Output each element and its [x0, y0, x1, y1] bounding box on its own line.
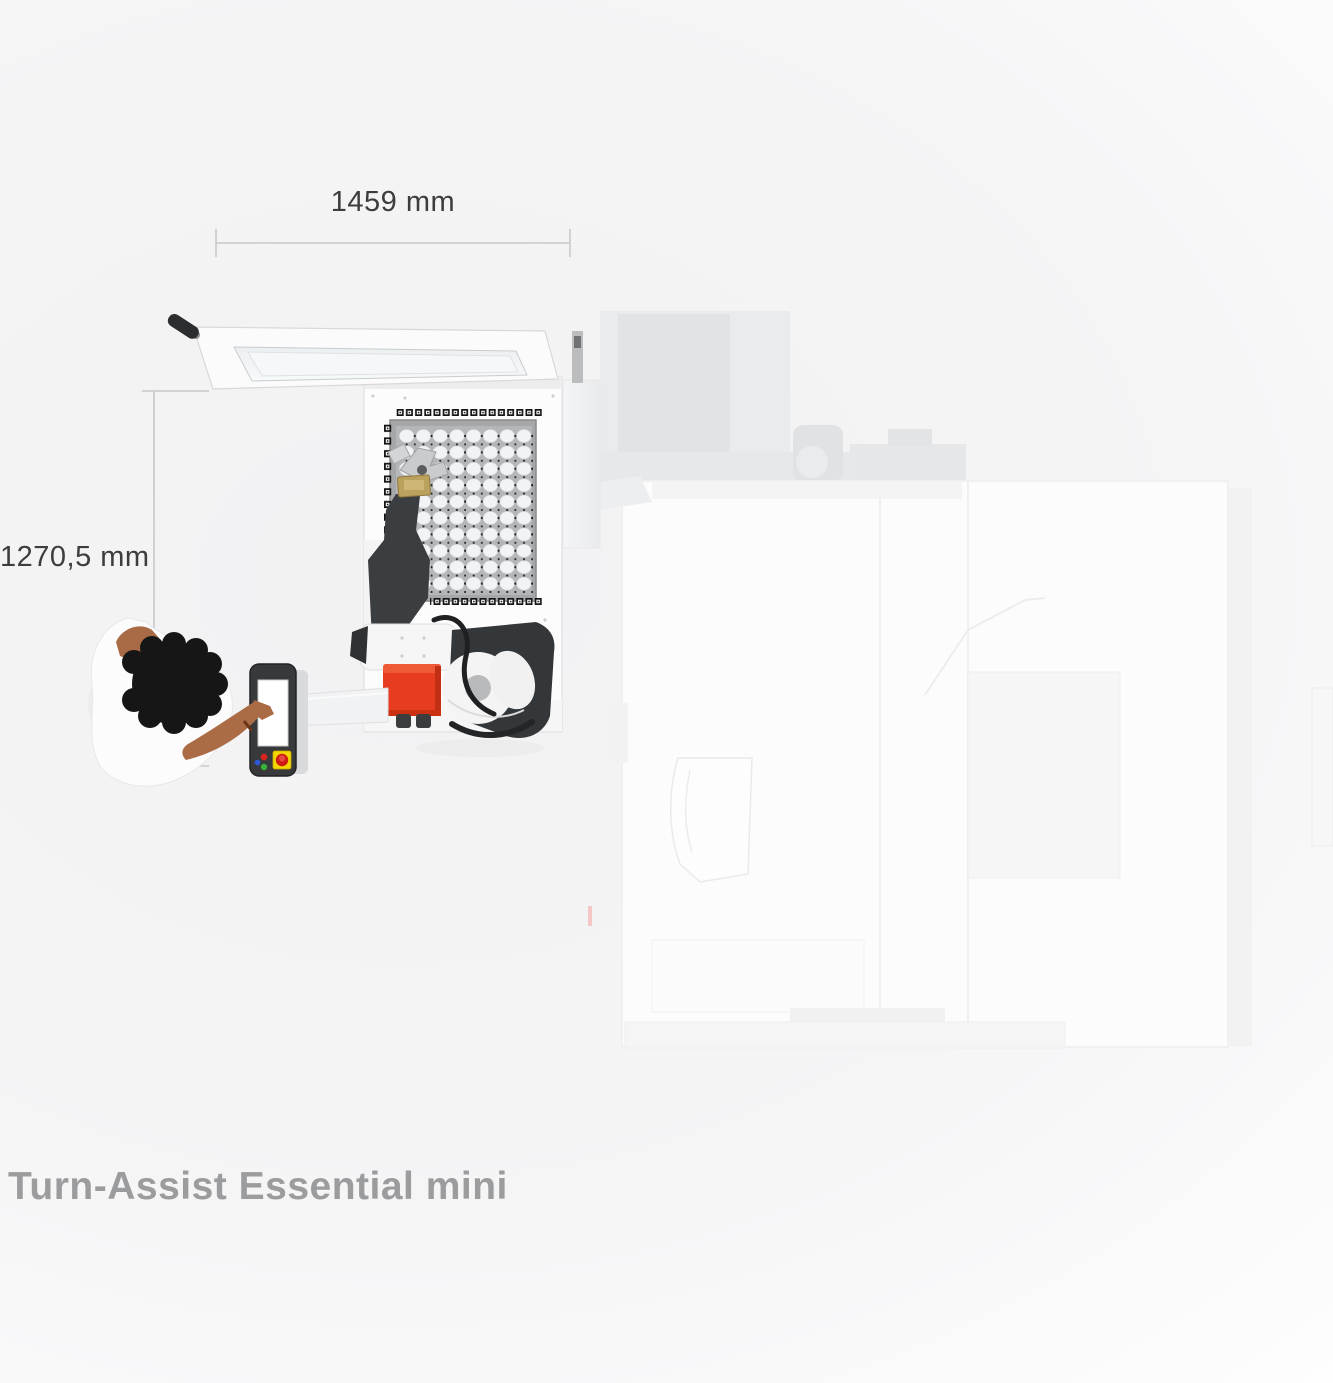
- emergency-stop-button: [273, 751, 291, 769]
- base-connector: [416, 714, 431, 728]
- robot-shoulder: [360, 624, 456, 670]
- width-dimension-line: [216, 229, 570, 257]
- fiducial-markers-top: [396, 408, 542, 417]
- cabinet-side-panel: [563, 380, 600, 548]
- pendant-button-red: [261, 754, 268, 761]
- lid-handle: [166, 312, 202, 341]
- product-caption: Turn-Assist Essential mini: [8, 1165, 508, 1209]
- operator: [88, 618, 274, 786]
- fiducial-markers-bottom: [430, 597, 542, 606]
- open-lid: [166, 312, 583, 389]
- height-dimension-label: 1270,5 mm: [0, 541, 141, 574]
- base-connector: [396, 714, 411, 728]
- product-layout-illustration: 1459 mm 1270,5 mm Turn-Assist Essential …: [0, 0, 1333, 1383]
- pendant-button-green: [261, 764, 267, 770]
- ghost-cnc-machine: [560, 311, 1333, 1048]
- pendant-button-blue: [255, 760, 261, 766]
- width-dimension-label: 1459 mm: [216, 186, 570, 219]
- control-pendant: [250, 664, 308, 776]
